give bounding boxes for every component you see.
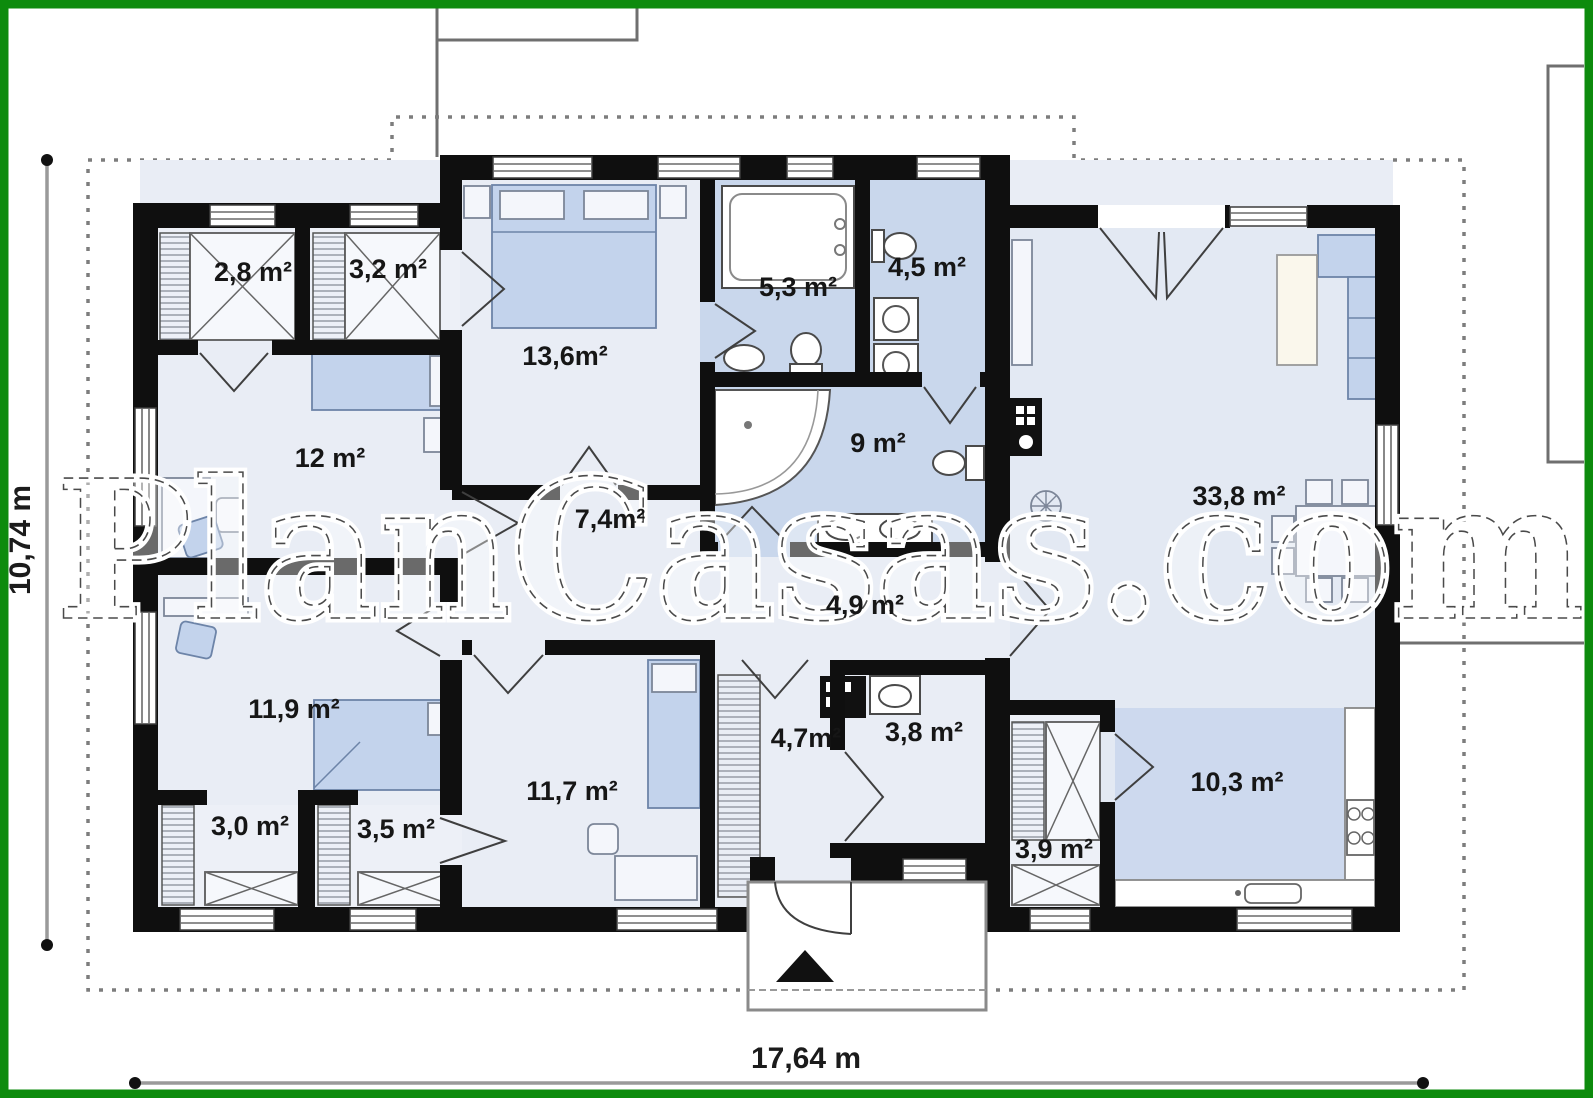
room-label-room-12: 12 m² [295, 443, 366, 473]
room-label-pantry-3-9: 3,9 m² [1015, 834, 1093, 864]
window-icon [180, 909, 274, 930]
window-icon [658, 157, 740, 178]
window-icon [350, 909, 416, 930]
sink-icon [1245, 884, 1301, 903]
wardrobe-hatch-icon [162, 805, 194, 905]
window-icon [210, 205, 275, 226]
stove-icon [1347, 800, 1374, 855]
floor-plan: PlanCasas.com PlanCasas.com 2,8 m² 3,2 m… [0, 0, 1593, 1098]
room-label-corridor-4-9: 4,9 m² [826, 590, 904, 620]
toilet-icon [790, 333, 822, 374]
watermark: PlanCasas.com PlanCasas.com [55, 439, 1585, 664]
window-icon [493, 157, 592, 178]
window-icon [350, 205, 418, 226]
room-label-bedroom-11-7: 11,7 m² [526, 776, 618, 806]
width-dimension-label: 17,64 m [751, 1042, 861, 1075]
double-bed-icon [464, 185, 686, 328]
room-label-hall-7-4: 7,4m² [575, 504, 646, 534]
wardrobe-x-icon [205, 872, 298, 905]
wardrobe-x-icon [358, 872, 452, 905]
window-icon [903, 859, 966, 880]
room-label-closet-2-8: 2,8 m² [214, 257, 292, 287]
wardrobe-hatch-icon [160, 233, 190, 340]
window-icon [1237, 909, 1352, 930]
sink-icon [870, 676, 920, 714]
wardrobe-x-icon [1012, 865, 1100, 905]
window-icon [617, 909, 717, 930]
room-label-closet-3-2: 3,2 m² [349, 254, 427, 284]
room-label-bedroom-13-6: 13,6m² [522, 341, 608, 371]
room-label-wc-3-8: 3,8 m² [885, 717, 963, 747]
room-label-bathroom-9: 9 m² [850, 428, 906, 458]
room-label-bathroom-5-3: 5,3 m² [759, 272, 837, 302]
window-icon [1030, 909, 1090, 930]
tv-board-icon [1277, 255, 1317, 365]
washing-machine-icon [874, 298, 918, 340]
wardrobe-x-icon [1046, 722, 1100, 840]
window-icon [917, 157, 980, 178]
double-door-opening [1098, 205, 1225, 228]
wardrobe-hatch-icon [318, 805, 350, 905]
entrance-porch [748, 882, 986, 1010]
wardrobe-x-icon [345, 233, 440, 340]
room-label-entry-4-7: 4,7m² [771, 723, 842, 753]
cabinet-icon [1012, 240, 1032, 365]
room-label-closet-3-5: 3,5 m² [357, 814, 435, 844]
room-label-kitchen-10-3: 10,3 m² [1190, 767, 1283, 797]
room-label-closet-3-0: 3,0 m² [211, 811, 289, 841]
room-label-bedroom-11-9: 11,9 m² [248, 694, 340, 724]
room-label-living-33-8: 33,8 m² [1192, 481, 1285, 511]
room-label-utility-4-5: 4,5 m² [888, 252, 966, 282]
watermark-outline: PlanCasas.com [55, 439, 1585, 664]
wardrobe-hatch-icon [313, 233, 345, 340]
window-icon [1230, 207, 1307, 226]
window-icon [787, 157, 833, 178]
wardrobe-hatch-icon [1012, 722, 1044, 840]
height-dimension-label: 10,74 m [4, 485, 37, 595]
single-bed-icon [648, 660, 700, 808]
